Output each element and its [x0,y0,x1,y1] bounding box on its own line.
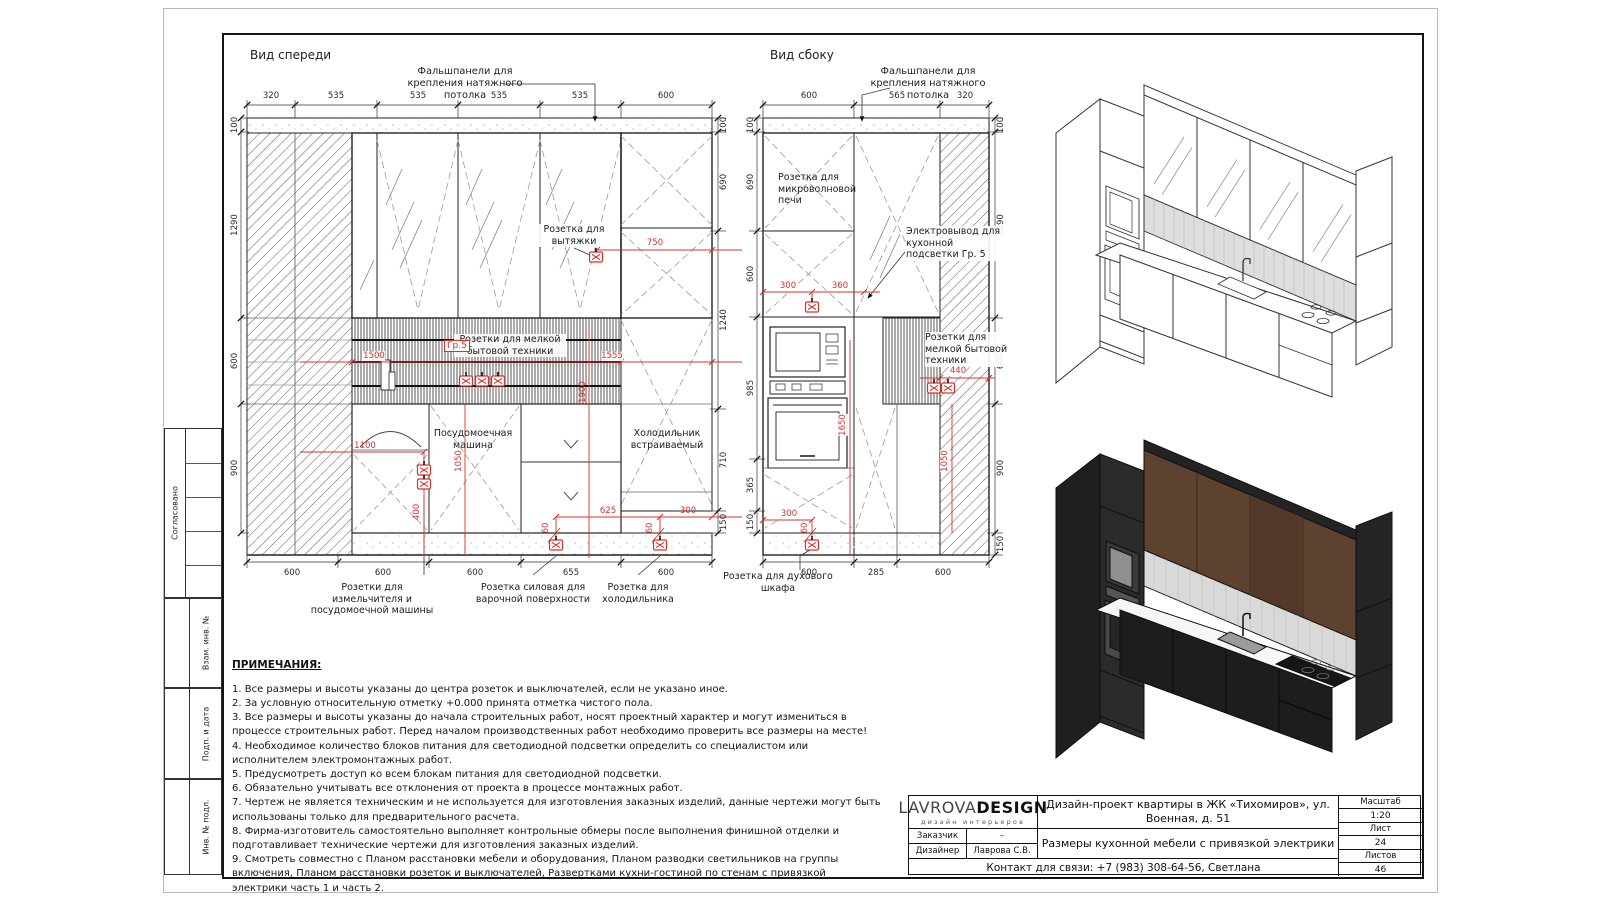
dim: 150 [719,514,729,530]
false-panel-note-side: Фальшпанели для крепления натяжного пото… [853,66,1003,103]
sheets-total-value: 46 [1339,863,1422,876]
margin-agreed-block: Согласовано [164,428,222,598]
dim: 600 [467,568,483,578]
red-dim: 625 [600,506,616,516]
dim: 565 [889,91,905,101]
red-dim: 400 [412,504,422,520]
note-item: 2. За условную относительную отметку +0.… [232,697,882,711]
red-dim: 60 [645,523,655,534]
dim: 600 [230,353,240,369]
red-dim: 1050 [940,450,950,472]
logo: LAVROVADESIGN дизайн интерьеров [909,796,1038,829]
sheet-number-label: Лист [1339,823,1422,836]
dim: 535 [572,91,588,101]
dim: 900 [230,460,240,476]
label-dishwasher: Посудомоечная машина [423,428,523,451]
note-item: 6. Обязательно учитывать все отклонения … [232,782,882,796]
note-item: 8. Фирма-изготовитель самостоятельно вып… [232,825,882,853]
dim: 985 [746,380,756,396]
logo-main-text: LAVROVA [898,798,976,817]
label-microwave-socket: Розетка для микроволновой печи [778,172,858,207]
dim: 600 [801,91,817,101]
red-dim: 300 [780,281,796,291]
label-led-output: Электровывод для кухонной подсветки Гр. … [906,226,1006,261]
sheet-number-value: 24 [1339,836,1422,850]
dim: 285 [868,568,884,578]
socket-icon [806,298,819,312]
customer-label: Заказчик [909,829,967,844]
margin-inv-orig-block: Инв. № подл. [164,779,222,875]
dim: 600 [658,568,674,578]
dim: 600 [935,568,951,578]
contact-line: Контакт для связи: +7 (983) 308-64-56, С… [909,859,1339,876]
note-item: 7. Чертеж не является техническим и не и… [232,796,882,824]
label-hood-socket: Розетка для вытяжки [529,224,619,247]
designer-label: Дизайнер [909,844,967,859]
margin-inv-orig-label: Инв. № подл. [202,799,211,854]
axonometric-line-view [1040,45,1410,380]
margin-sign-date-label: Подп. и дата [202,706,211,761]
dim: 100 [996,117,1006,133]
dim: 365 [746,477,756,493]
axonometric-render-view [1040,390,1410,775]
red-dim: 1555 [601,351,623,361]
red-dim: 60 [541,523,551,534]
dim: 535 [410,91,426,101]
project-title: Дизайн-проект квартиры в ЖК «Тихомиров»,… [1038,796,1339,829]
red-dim: 1900 [578,381,588,403]
customer-value: – [967,829,1038,844]
dim: 100 [230,117,240,133]
margin-sign-date-block: Подп. и дата [164,688,222,779]
dim: 600 [746,266,756,282]
label-small-appliance-sockets: Розетки для мелкой бытовой техники [454,334,566,357]
title-block: LAVROVADESIGN дизайн интерьеров Дизайн-п… [908,795,1421,875]
dim: 600 [375,568,391,578]
label-oven-socket: Розетка для духового шкафа [723,571,833,594]
notes-section: ПРИМЕЧАНИЯ: 1. Все размеры и высоты указ… [232,658,882,896]
designer-value: Лаврова С.В. [967,844,1038,859]
drawing-sheet: Вид спереди Фальшпанели для крепления на… [0,0,1600,900]
dim: 690 [719,174,729,190]
red-dim: 1100 [354,441,376,451]
red-dim: 1500 [363,351,385,361]
dim: 710 [719,452,729,468]
dim: 1290 [230,214,240,236]
logo-subtitle: дизайн интерьеров [921,818,1025,826]
scale-label: Масштаб [1339,796,1422,809]
notes-title: ПРИМЕЧАНИЯ: [232,658,882,673]
red-dim: 300 [781,509,797,519]
dim: 1240 [719,309,729,331]
group-5-tag: Гр.5 [444,340,470,352]
dim: 535 [328,91,344,101]
dim: 690 [746,174,756,190]
note-item: 1. Все размеры и высоты указаны до центр… [232,683,882,697]
margin-replace-inv-label: Взам. инв. № [202,616,211,670]
label-grinder-sockets: Розетки для измельчителя и посудомоечной… [307,582,437,617]
red-dim: 1050 [454,450,464,472]
margin-replace-inv-block: Взам. инв. № [164,598,222,688]
red-dim: 300 [680,506,696,516]
logo-bold-text: DESIGN [976,798,1047,817]
label-fridge: Холодильник встраиваемый [619,428,715,451]
note-item: 3. Все размеры и высоты указаны до начал… [232,711,882,739]
side-view-title: Вид сбоку [770,48,834,62]
dim: 150 [996,536,1006,552]
front-view-title: Вид спереди [250,48,331,62]
dim: 320 [957,91,973,101]
label-fridge-socket: Розетка для холодильника [578,582,698,605]
dim: 900 [996,460,1006,476]
margin-agreed-label: Согласовано [171,486,180,540]
note-item: 4. Необходимое количество блоков питания… [232,740,882,768]
dim: 600 [284,568,300,578]
dim: 100 [719,117,729,133]
red-dim: 440 [950,366,966,376]
dim: 320 [263,91,279,101]
red-dim: 60 [800,523,810,534]
note-item: 9. Смотреть совместно с Планом расстанов… [232,853,882,896]
sheet-title: Размеры кухонной мебели с привязкой элек… [1038,829,1339,859]
dim: 655 [563,568,579,578]
dim: 100 [746,117,756,133]
dim: 600 [658,91,674,101]
red-dim: 1650 [838,414,848,436]
dim: 150 [746,514,756,530]
sheets-total-label: Листов [1339,850,1422,863]
dim: 535 [491,91,507,101]
note-item: 5. Предусмотреть доступ ко всем блокам п… [232,768,882,782]
label-small-appliance-sockets-side: Розетки для мелкой бытовой техники [925,332,1020,367]
scale-value: 1:20 [1339,809,1422,823]
red-dim: 360 [832,281,848,291]
red-dim: 750 [647,238,663,248]
